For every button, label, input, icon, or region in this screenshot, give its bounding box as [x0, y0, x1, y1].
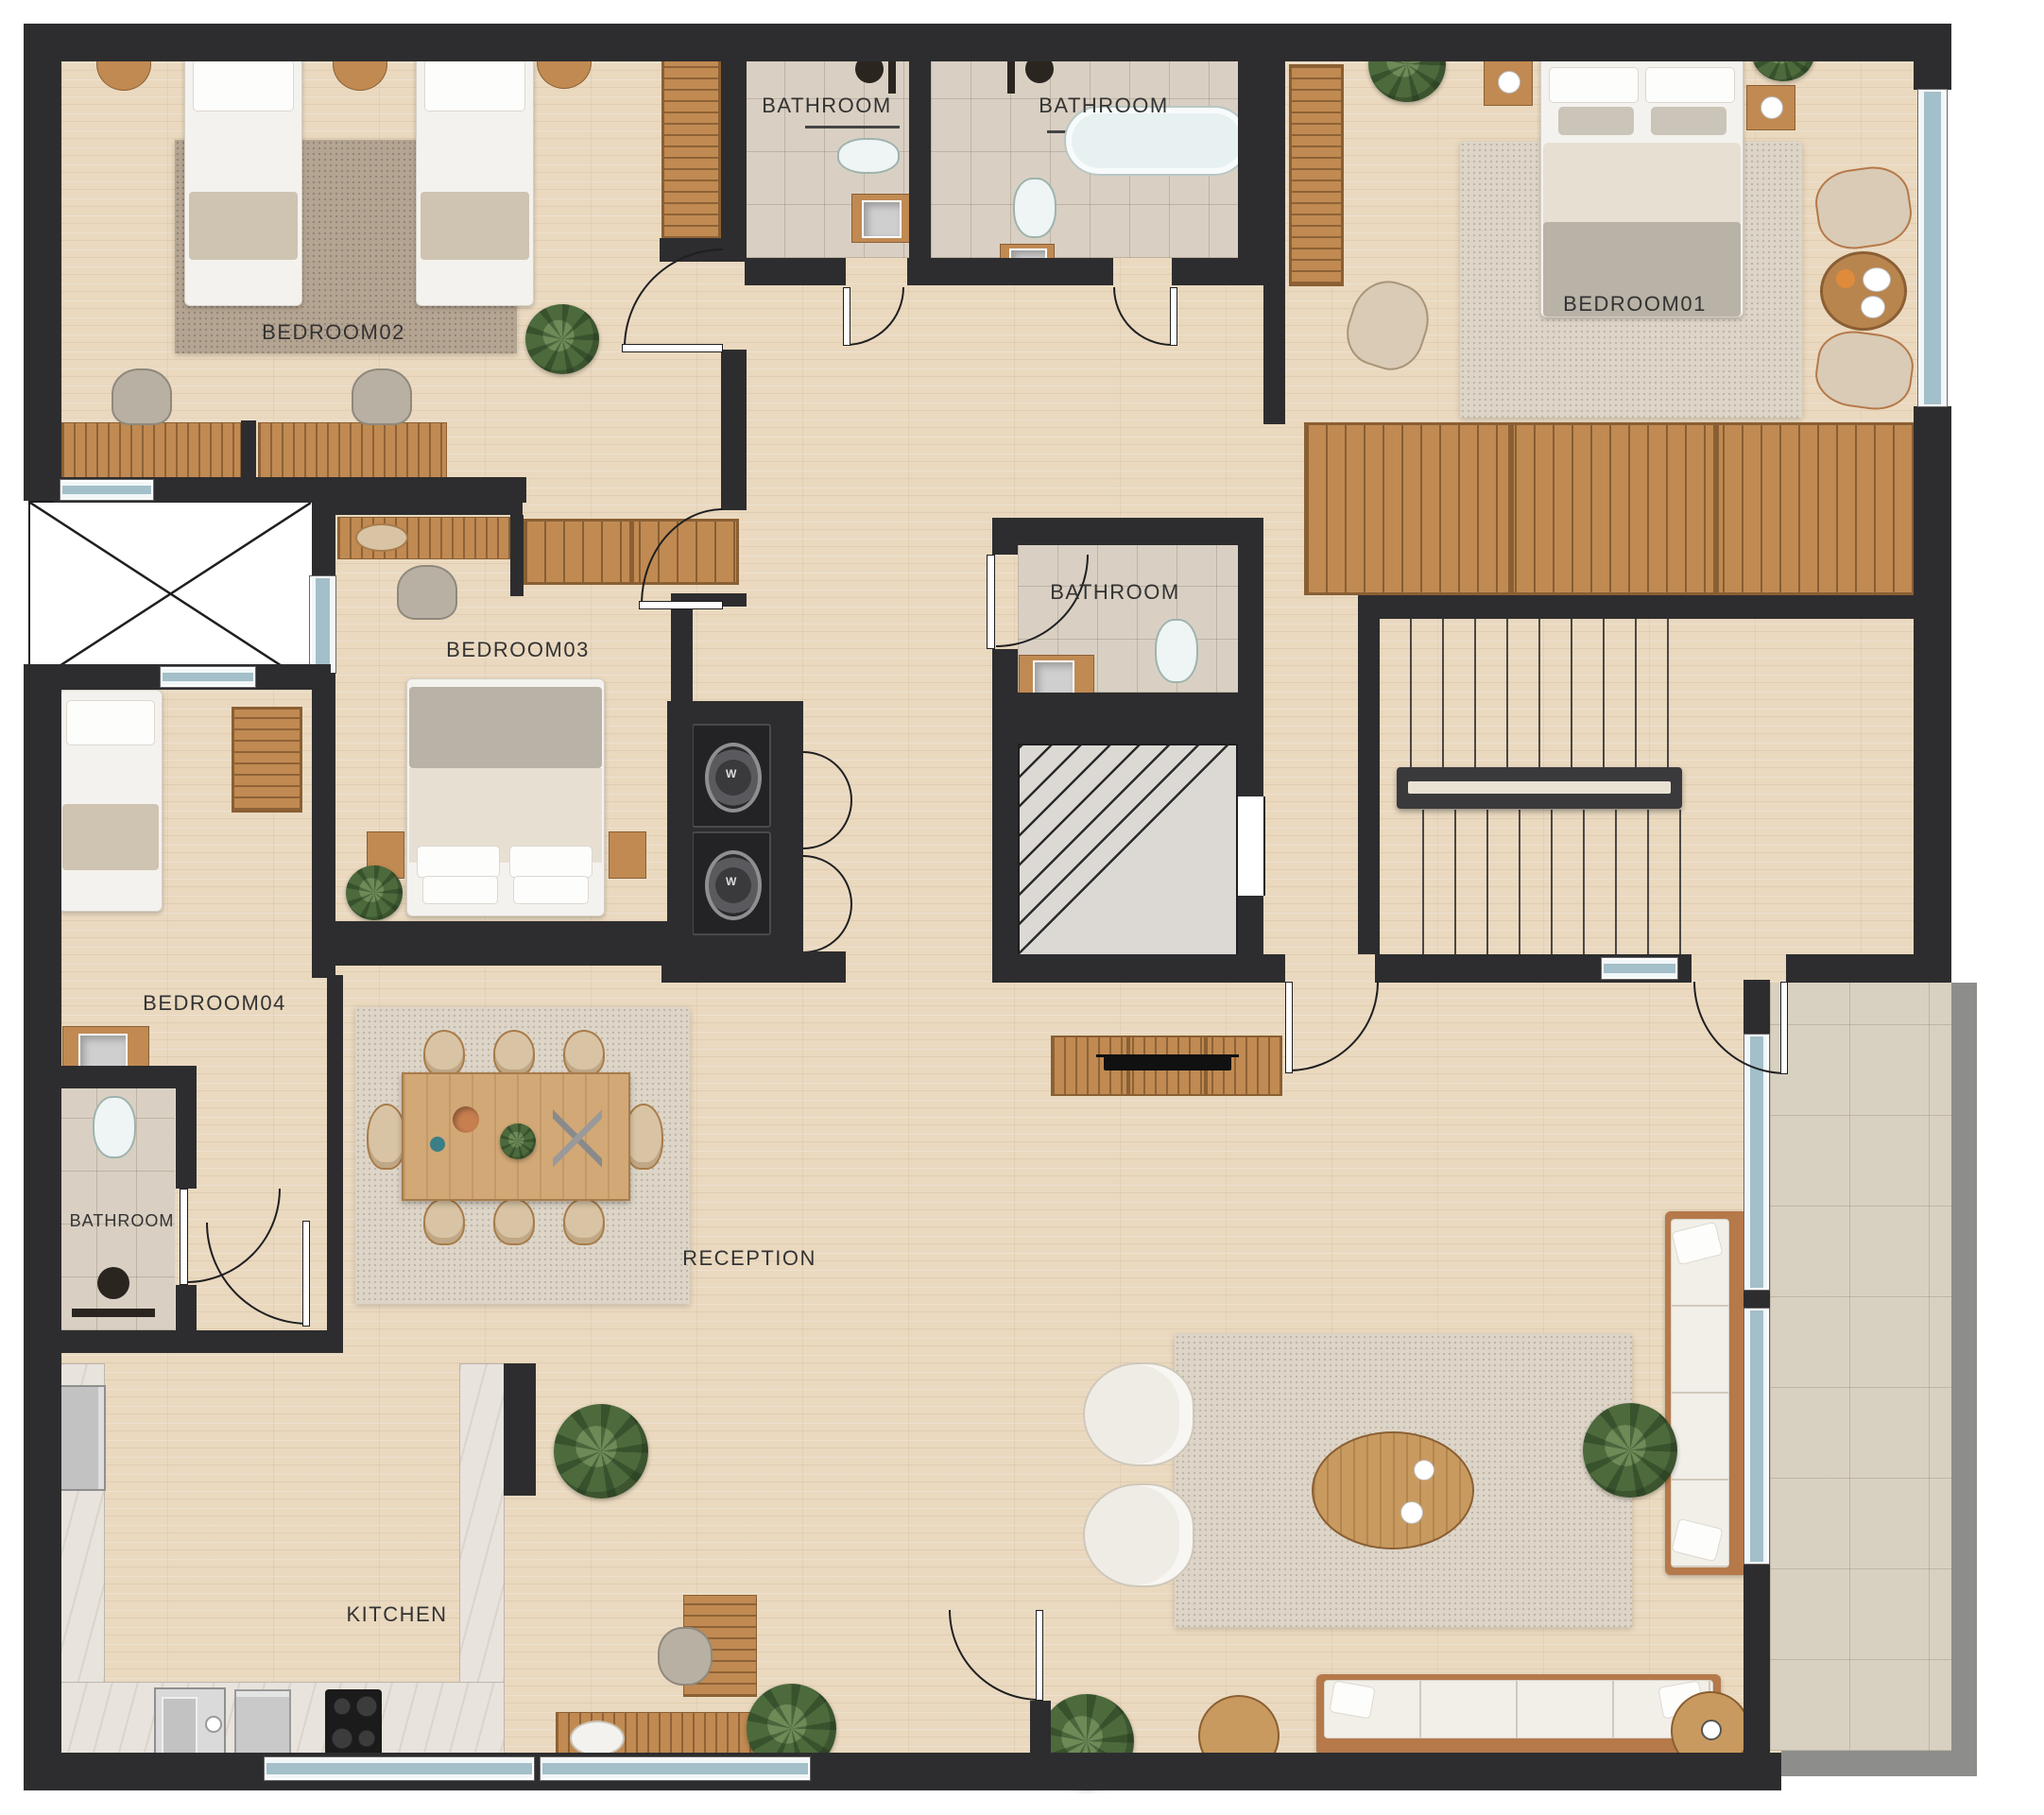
throw-blanket — [409, 687, 602, 768]
cup-icon — [1701, 1720, 1722, 1740]
window — [310, 576, 335, 673]
pillow — [509, 846, 593, 878]
wall-elevator-north — [992, 693, 1263, 744]
twin-bed — [416, 49, 534, 306]
wall-bedroom01-west — [1263, 24, 1285, 424]
lamp-icon — [1761, 96, 1783, 119]
pillow — [1329, 1680, 1375, 1719]
toilet-icon — [1013, 178, 1056, 238]
wall-bedroom02-east-lower — [721, 350, 747, 510]
armchair — [1083, 1362, 1194, 1466]
desk-chair — [352, 368, 412, 425]
wall-bathroom4-south — [43, 1330, 343, 1353]
washer-letter: W — [726, 767, 736, 780]
pillow — [424, 60, 525, 111]
nightstand — [609, 831, 646, 879]
stair-handrail — [1397, 767, 1682, 809]
elevator-hatch — [1020, 745, 1235, 954]
door-leaf — [843, 287, 850, 346]
dining-chair — [493, 1198, 535, 1245]
sink-bowl-icon — [162, 1697, 198, 1755]
sofa-right — [1665, 1211, 1748, 1575]
wall-bedroom02-east-upper — [721, 24, 747, 246]
pillow — [66, 700, 155, 745]
balcony-outer-edge-bottom — [1781, 1751, 1977, 1776]
wall-bathroom4-north — [43, 1066, 176, 1088]
closet-divider — [629, 522, 634, 582]
washing-machine: W — [692, 831, 771, 935]
desk-chair — [397, 565, 457, 620]
dining-chair — [563, 1198, 605, 1245]
wall-bathroom4-east-b — [176, 1285, 197, 1332]
room-label-bedroom02: BEDROOM02 — [262, 322, 405, 343]
wall-bedroom03-east — [671, 593, 693, 933]
stair-treads-upper — [1410, 619, 1695, 770]
double-bed — [1540, 55, 1743, 317]
window — [60, 480, 153, 500]
desk — [258, 422, 447, 479]
nightstand — [1484, 59, 1533, 106]
wall-stairs-west — [1358, 595, 1380, 954]
sink-basin-icon — [1033, 660, 1074, 696]
wall-kitchen-stub — [504, 1363, 536, 1496]
door-leaf — [180, 1189, 188, 1285]
nightstand — [1746, 85, 1795, 130]
void-x-mark — [30, 503, 311, 685]
wall-right-mid — [1914, 406, 1951, 983]
wall-bathroom-middle-west-b — [992, 649, 1018, 693]
shower-bar-icon — [72, 1309, 155, 1317]
pillow — [417, 846, 500, 878]
desk-chair — [112, 368, 172, 425]
room-label-bedroom01: BEDROOM01 — [1563, 294, 1707, 315]
cup-icon — [1414, 1460, 1434, 1481]
pillow — [193, 60, 294, 111]
door-leaf — [1285, 982, 1293, 1073]
room-label-bathroom-top-left: BATHROOM — [762, 95, 891, 116]
fridge — [59, 1385, 106, 1491]
hall-chair — [658, 1627, 713, 1686]
table-plant-icon — [500, 1123, 536, 1159]
door-leaf — [1036, 1610, 1043, 1701]
floor-plan-canvas: W W — [0, 0, 2044, 1815]
vase-icon — [430, 1137, 445, 1152]
vanity-sink — [851, 194, 910, 243]
potted-plant-icon — [554, 1404, 648, 1498]
toilet-icon — [837, 138, 900, 174]
room-label-bedroom03: BEDROOM03 — [446, 640, 590, 660]
stair-treads-lower — [1422, 810, 1695, 954]
wall-bathroom4-east-a — [176, 1066, 197, 1189]
wall-elevator-west — [992, 744, 1018, 983]
wall-bedroom03-west-a — [312, 515, 335, 576]
wall-bedroom03-north — [312, 489, 523, 515]
window — [1744, 1309, 1769, 1564]
sofa-cushions — [1324, 1680, 1713, 1738]
door-leaf — [622, 344, 723, 352]
dining-chair — [563, 1030, 605, 1077]
closet-divider — [1713, 425, 1719, 592]
wall-bathroom-middle-west-a — [992, 545, 1018, 555]
sink-basin-icon — [862, 200, 902, 238]
wall-bedroom04-east — [327, 975, 343, 1353]
plate-icon — [1863, 267, 1891, 292]
pillow — [422, 876, 498, 904]
pillow — [513, 876, 589, 904]
dining-chair — [423, 1198, 465, 1245]
shower-head-icon — [97, 1267, 129, 1299]
potted-plant-icon — [346, 865, 403, 920]
dining-chair — [493, 1030, 535, 1077]
washing-machine: W — [692, 724, 771, 828]
door-leaf — [987, 555, 995, 649]
window — [265, 1757, 534, 1780]
wall-bathrooms-south-c — [1172, 258, 1263, 285]
door-leaf — [1170, 287, 1177, 346]
wall-living-east-c — [1743, 1562, 1770, 1753]
wall-living-east-b — [1743, 1288, 1770, 1310]
sofa-bottom — [1316, 1674, 1721, 1755]
potted-plant-icon — [1583, 1403, 1677, 1498]
wall-reception-north-a — [992, 954, 1285, 983]
oval-coffee-table — [1312, 1431, 1474, 1550]
door-leaf — [302, 1221, 310, 1327]
room-label-bathroom-middle: BATHROOM — [1050, 582, 1179, 603]
basin-icon — [570, 1721, 625, 1756]
plate-icon — [1861, 296, 1885, 318]
wall-hall-stub — [1030, 1701, 1051, 1755]
blanket — [421, 192, 529, 260]
wall-top — [24, 24, 1951, 61]
closet-divider — [1508, 425, 1514, 592]
window — [541, 1757, 810, 1780]
wall-bedroom03-stub — [510, 515, 524, 596]
window — [1602, 958, 1677, 979]
room-label-kitchen: KITCHEN — [346, 1604, 447, 1625]
cup-icon — [1400, 1501, 1423, 1524]
balcony-floor — [1770, 983, 1951, 1751]
washer-letter: W — [726, 875, 736, 888]
pillow — [1549, 67, 1639, 103]
handrail-inner — [1408, 781, 1671, 794]
wall-bathroom-middle-north — [992, 518, 1263, 545]
round-coffee-table — [1820, 251, 1907, 331]
table-decor-icon — [553, 1104, 602, 1173]
potted-plant-icon — [525, 304, 599, 374]
wall-bedroom03-south — [329, 921, 693, 966]
wardrobe-tall — [232, 707, 302, 813]
wall-desk-stub — [241, 420, 256, 479]
window — [1918, 90, 1947, 406]
room-label-bathroom-bottom: BATHROOM — [70, 1212, 175, 1229]
elevator-shaft — [1018, 744, 1238, 957]
wall-reception-north-c — [1786, 954, 1918, 983]
light-well-void — [28, 501, 314, 688]
wall-bathroom-divider — [909, 24, 931, 258]
room-label-reception: RECEPTION — [682, 1248, 816, 1269]
dining-chair — [367, 1104, 406, 1170]
bowl-icon — [453, 1106, 479, 1133]
lamp-icon — [1498, 71, 1520, 94]
wall-stairs-north — [1358, 595, 1951, 619]
toilet-icon — [93, 1096, 136, 1158]
closet-run — [1304, 422, 1918, 595]
window — [1744, 1035, 1769, 1290]
faucet-icon — [205, 1716, 222, 1733]
sofa-cushions — [1671, 1219, 1729, 1567]
wall-corridor-south — [661, 951, 846, 983]
wall-left-upper — [24, 24, 61, 501]
pillow — [1651, 107, 1726, 135]
desk-lamp-icon — [355, 523, 408, 552]
elevator-door — [1236, 796, 1265, 896]
room-label-bedroom04: BEDROOM04 — [143, 993, 286, 1014]
blanket — [189, 192, 298, 260]
balcony-outer-edge-right — [1951, 983, 1977, 1776]
armchair — [1083, 1483, 1194, 1587]
wall-bathrooms-south-b — [907, 258, 1113, 285]
room-label-bathroom-top-right: BATHROOM — [1039, 95, 1168, 116]
door-leaf — [639, 601, 723, 609]
wall-left-lower — [24, 687, 61, 1753]
wall-bathroom2-east — [1238, 24, 1263, 258]
wall-elevator-east-a — [1238, 744, 1263, 796]
towel-bar-icon — [805, 126, 900, 128]
dining-table — [402, 1072, 630, 1201]
window — [161, 667, 255, 687]
double-bed — [406, 678, 605, 916]
desk — [61, 422, 241, 479]
plate-icon — [1836, 269, 1855, 288]
dining-chair — [423, 1030, 465, 1077]
wall-right-top — [1914, 24, 1951, 90]
blanket — [62, 804, 159, 870]
single-bed — [59, 690, 163, 912]
pillow — [1558, 107, 1634, 135]
toilet-icon — [1155, 619, 1198, 683]
tv-icon — [1104, 1056, 1231, 1070]
pillow — [1645, 67, 1735, 103]
desk — [337, 517, 510, 559]
twin-bed — [184, 49, 302, 306]
door-leaf — [1780, 982, 1788, 1074]
wall-bathrooms-south-a — [745, 258, 846, 285]
wardrobe-tall — [1289, 64, 1344, 286]
kitchen-sink — [154, 1687, 226, 1763]
